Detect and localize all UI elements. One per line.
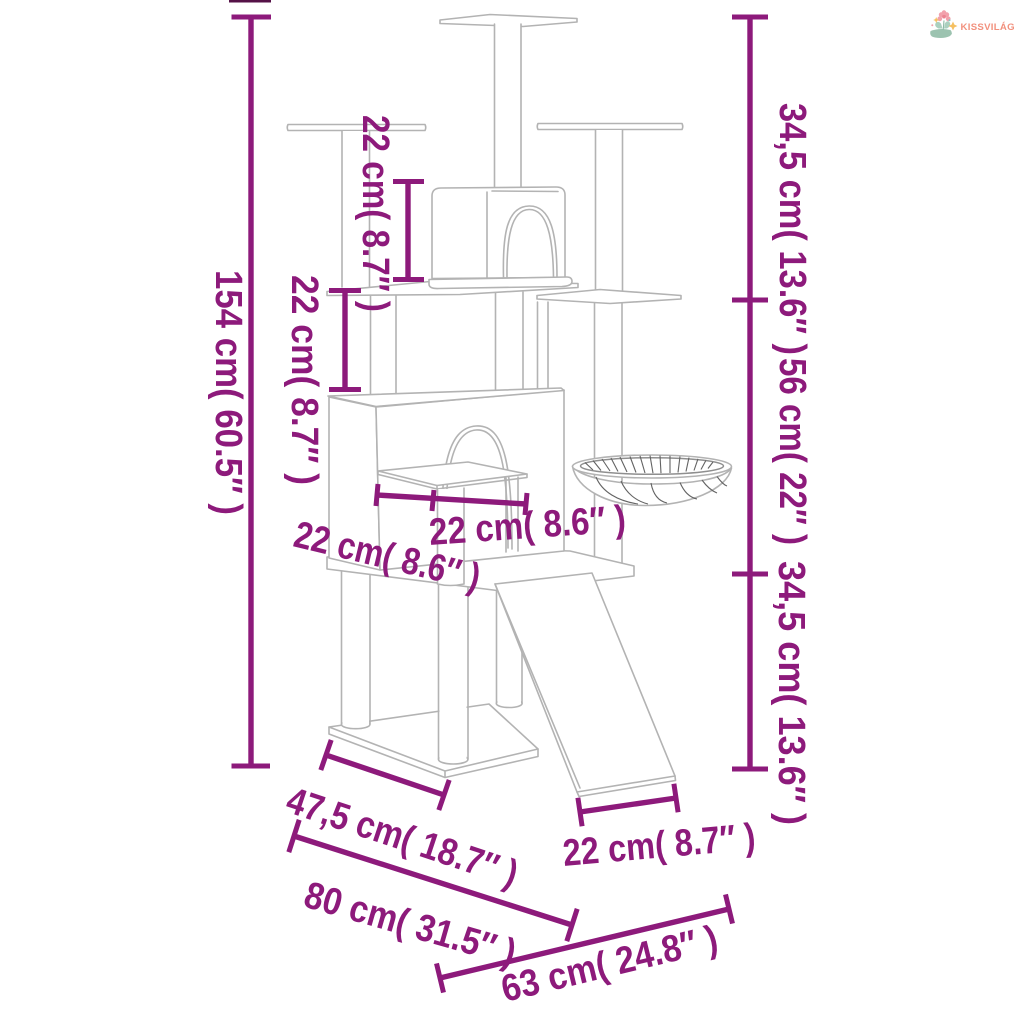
svg-text:22 cm( 8.7″ ): 22 cm( 8.7″ )	[283, 275, 325, 485]
svg-text:34,5 cm( 13.6″ ): 34,5 cm( 13.6″ )	[771, 103, 813, 355]
svg-text:154 cm( 60.5″ ): 154 cm( 60.5″ )	[207, 270, 249, 515]
svg-text:KISSVILÁG: KISSVILÁG	[961, 21, 1015, 33]
svg-text:56 cm( 22″ ): 56 cm( 22″ )	[771, 358, 813, 545]
svg-text:34,5 cm( 13.6″ ): 34,5 cm( 13.6″ )	[770, 561, 812, 825]
svg-text:22 cm( 8.7″ ): 22 cm( 8.7″ )	[354, 115, 396, 312]
